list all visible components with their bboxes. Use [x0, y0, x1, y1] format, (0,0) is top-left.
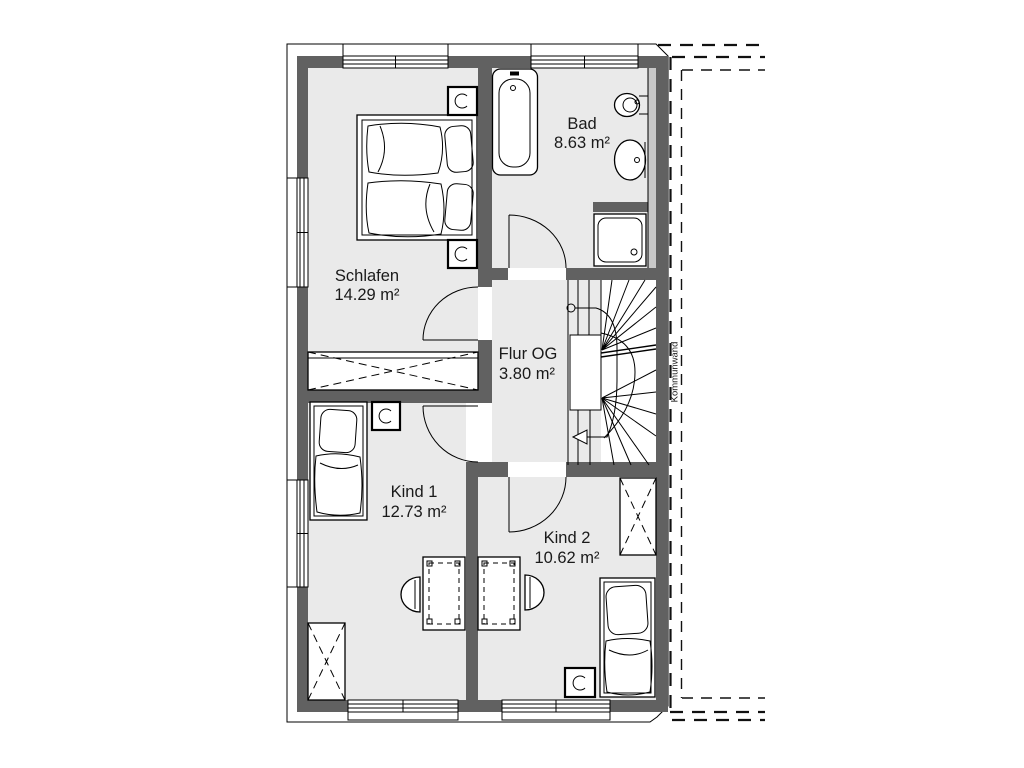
room-label-kind1: Kind 1 [391, 483, 438, 501]
party-wall-dashed-outline: Kommunwand [658, 45, 765, 720]
room-area-kind1: 12.73 m² [381, 503, 447, 521]
room-label-bad: Bad [567, 115, 596, 133]
washbasin [615, 140, 646, 180]
threshold-bad [508, 268, 566, 280]
window-left-kind1 [287, 480, 308, 587]
neighbour-inner-dashed [682, 70, 766, 698]
threshold-kind2 [508, 462, 566, 477]
wall-bad-flur [478, 268, 656, 280]
threshold-schlafen [478, 287, 492, 340]
wall-left [297, 56, 308, 712]
nightstand-schlafen-bottom [448, 240, 477, 268]
threshold-kind1 [478, 403, 492, 462]
window-top-bad [531, 44, 638, 68]
wall-kind1-kind2 [466, 462, 478, 712]
nightstand-kind2 [565, 668, 595, 697]
window-top-schlafen [343, 44, 448, 68]
desk-kind1 [423, 557, 465, 630]
bathtub [493, 69, 538, 175]
room-label-schlafen: Schlafen [335, 267, 399, 285]
wall-right-party [656, 56, 668, 712]
nightstand-kind1 [372, 402, 400, 430]
room-area-kind2: 10.62 m² [534, 549, 600, 567]
wall-schlafen-bad [478, 68, 492, 403]
wall-shower-stub [593, 202, 656, 212]
room-area-schlafen: 14.29 m² [334, 286, 400, 304]
wardrobe-kind2 [620, 478, 656, 555]
single-bed-kind1 [310, 402, 367, 520]
room-label-kind2: Kind 2 [544, 529, 591, 547]
desk-kind2 [478, 557, 520, 630]
floor-plan-canvas: Kommunwand Schlafen 14.29 m² Bad 8.63 m²… [0, 0, 1024, 768]
room-label-flur: Flur OG [499, 345, 558, 363]
wardrobe-schlafen [308, 352, 478, 390]
party-wall-label: Kommunwand [670, 342, 681, 403]
window-bottom-kind2 [502, 700, 610, 720]
window-bottom-kind1 [348, 700, 458, 720]
shower [594, 214, 646, 266]
double-bed [357, 115, 477, 240]
party-wall-insulation-strip [648, 68, 656, 268]
wardrobe-kind1 [308, 623, 345, 700]
window-left-schlafen [287, 178, 308, 287]
single-bed-kind2 [600, 578, 655, 697]
room-area-flur: 3.80 m² [499, 365, 555, 383]
room-area-bad: 8.63 m² [554, 134, 610, 152]
floor-plan-svg: Kommunwand Schlafen 14.29 m² Bad 8.63 m²… [0, 0, 1024, 768]
nightstand-schlafen-top [448, 87, 477, 115]
bathtub-faucet [510, 72, 519, 76]
